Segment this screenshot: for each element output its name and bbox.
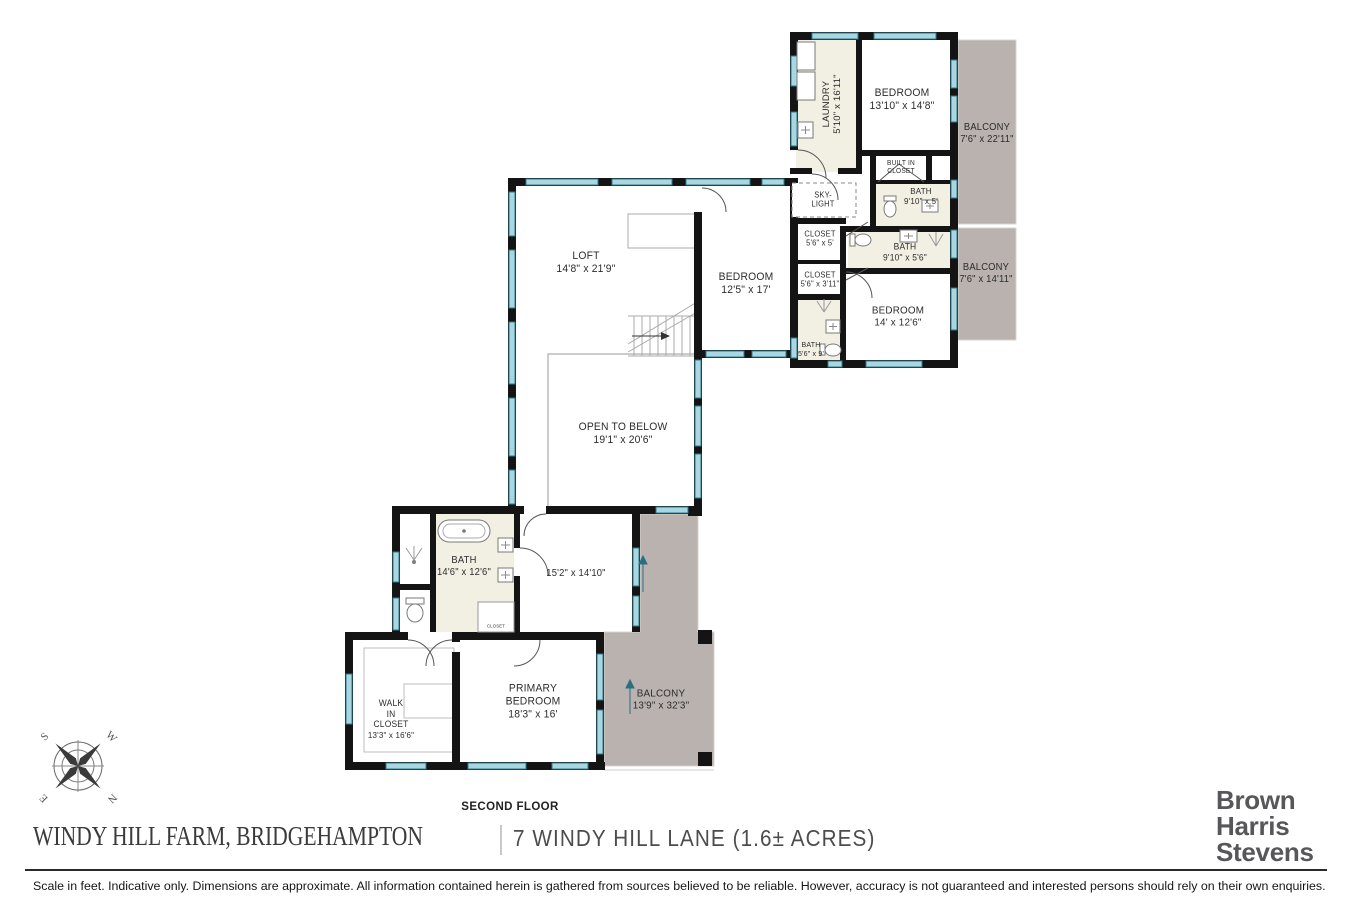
toilet-icon	[407, 604, 423, 622]
property-address: 7 WINDY HILL LANE (1.6± ACRES)	[513, 825, 875, 852]
room-label-balcony-bottom: BALCONY13'9" x 32'3"	[633, 688, 690, 713]
toilet-icon	[884, 196, 896, 201]
room-label-laundry: LAUNDRY 5'10" x 16'11"	[821, 74, 843, 133]
room-label-bath-mid: BATH9'10" x 5'6"	[883, 241, 927, 262]
room-label-bath-top: BATH9'10" x 5'	[904, 186, 938, 206]
shower-icon	[406, 546, 422, 560]
toilet-icon	[825, 344, 841, 356]
laundry-shelf	[797, 42, 815, 70]
room-label-bedroom-mid: BEDROOM14' x 12'6"	[872, 305, 924, 330]
room-label-bath-small: BATH5'6" x 9'	[798, 341, 824, 359]
compass-letter-e: E	[37, 791, 50, 804]
room-label-primary-bedroom: PRIMARY BEDROOM 18'3" x 16'	[506, 683, 561, 722]
room-label-closet-b: CLOSET5'6" x 3'11"	[801, 271, 840, 290]
room-label-loft: LOFT14'8" x 21'9"	[556, 250, 615, 276]
room-label-bath-primary: BATH14'6" x 12'6"	[437, 555, 491, 579]
room-label-built-in-closet: BUILT INCLOSET	[887, 160, 915, 177]
room-label-sitting-dims: 15'2" x 14'10"	[546, 568, 605, 580]
room-label-skylight: SKY-LIGHT	[811, 191, 834, 210]
room-label-balcony-mid: BALCONY7'6" x 14'11"	[959, 262, 1012, 286]
balcony-bottom-deck	[604, 514, 714, 766]
brand-line: Harris	[1216, 813, 1314, 839]
disclaimer-text: Scale in feet. Indicative only. Dimensio…	[33, 879, 1326, 893]
room-label-balcony-top: BALCONY7'6" x 22'11"	[960, 122, 1013, 146]
laundry-shelf	[797, 72, 815, 100]
compass-rose: S W N E	[37, 729, 119, 805]
toilet-icon	[406, 598, 424, 604]
floor-plan-page: S W N E LAUNDRY 5'10" x 16'11" BEDROOM13…	[0, 0, 1350, 904]
room-label-open-to-below: OPEN TO BELOW19'1" x 20'6"	[579, 421, 668, 447]
floor-level-label: SECOND FLOOR	[461, 801, 558, 813]
toilet-icon	[855, 234, 871, 246]
room-label-walk-in-closet: WALK IN CLOSET 13'3" x 16'6"	[368, 698, 414, 740]
floor-plan-drawing: S W N E	[0, 0, 1350, 904]
stair-diagonals	[628, 302, 697, 352]
stair-landing	[628, 214, 698, 248]
footer-rule	[25, 869, 1327, 871]
property-title: WINDY HILL FARM, BRIDGEHAMPTON	[33, 821, 423, 852]
compass-letter-w: W	[103, 729, 119, 745]
room-label-bedroom-left: BEDROOM12'5" x 17'	[719, 271, 774, 297]
brand-line: Brown	[1216, 787, 1314, 813]
brown-harris-stevens-logo: Brown Harris Stevens	[1216, 787, 1314, 865]
toilet-icon	[850, 234, 855, 246]
toilet-icon	[884, 201, 896, 217]
compass-letter-s: S	[38, 730, 51, 743]
room-label-closet-tiny: CLOSET	[487, 623, 505, 628]
title-divider	[500, 825, 502, 855]
brand-line: Stevens	[1216, 839, 1314, 865]
room-label-bedroom-top: BEDROOM13'10" x 14'8"	[869, 87, 934, 113]
compass-letter-n: N	[105, 791, 119, 805]
room-label-closet-a: CLOSET5'6" x 5'	[804, 230, 835, 249]
